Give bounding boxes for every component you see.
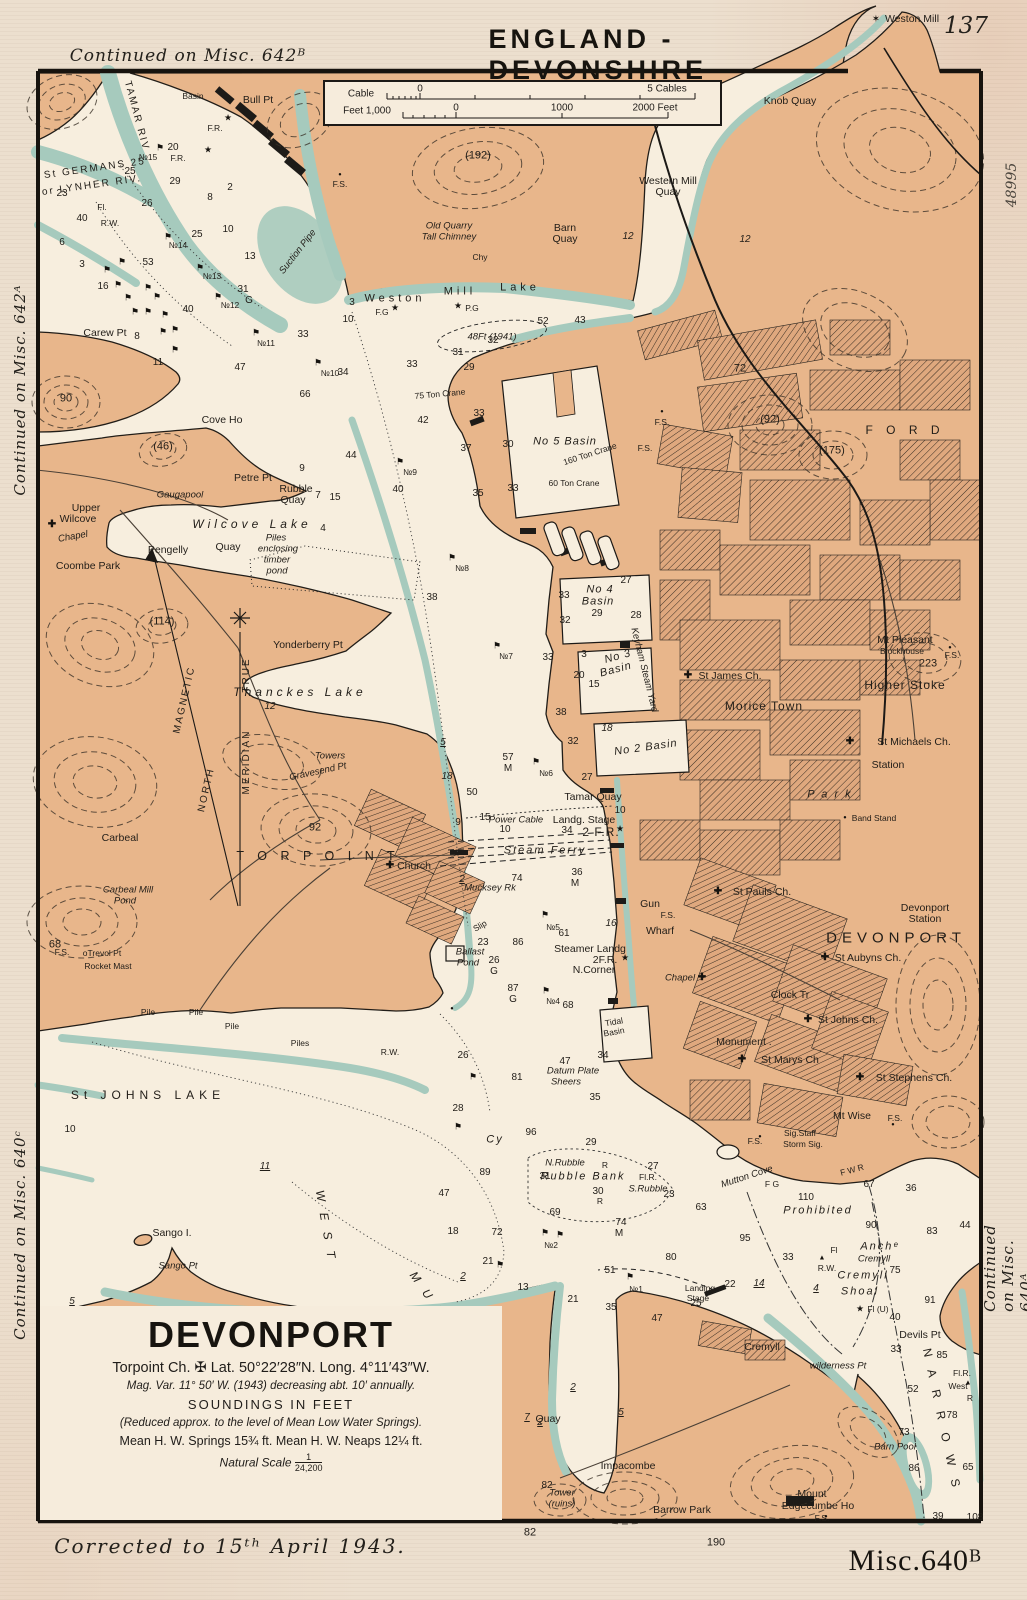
scale-feet-label: Feet 1,000	[343, 106, 391, 117]
page-number: 137	[944, 13, 988, 39]
continued-note-left-bottom: Continued on Misc. 640ᶜ	[11, 1130, 29, 1340]
continued-note-top: Continued on Misc. 642ᴮ	[70, 46, 307, 66]
scale-cable-label: Cable	[348, 89, 374, 100]
natural-scale-label: Natural Scale	[220, 1456, 292, 1470]
soundings-note: SOUNDINGS IN FEET	[40, 1397, 502, 1412]
scale-feet-right: 2000 Feet	[632, 103, 677, 114]
scale-bar-box: Cable 0 5 Cables Feet 1,000 0 1000 2000 …	[323, 80, 722, 126]
magnetic-variation: Mag. Var. 11° 50′ W. (1943) decreasing a…	[40, 1380, 502, 1392]
scale-denominator: 24,200	[295, 1462, 323, 1473]
corrected-note: Corrected to 15ᵗʰ April 1943.	[54, 1534, 406, 1558]
scale-numerator: 1	[306, 1452, 311, 1462]
natural-scale-fraction: 1 24,200	[295, 1453, 323, 1474]
stock-number: 48995	[1004, 163, 1020, 208]
chart-title: DEVONPORT	[40, 1314, 502, 1356]
chart-region-title: ENGLAND - DEVONSHIRE	[489, 24, 848, 86]
scale-feet-zero: 0	[453, 103, 459, 114]
scale-feet-mid: 1000	[551, 103, 573, 114]
chart-position: Torpoint Ch. ✠ Lat. 50°22′28″N. Long. 4°…	[40, 1360, 502, 1376]
scale-cable-zero: 0	[417, 84, 423, 95]
title-block: DEVONPORT Torpoint Ch. ✠ Lat. 50°22′28″N…	[40, 1306, 502, 1520]
chart-page: Weston MillKnob QuayWestern MillQuayBarn…	[0, 0, 1027, 1600]
continued-note-right: Continued on Misc. 640ᴬ	[981, 1224, 1027, 1312]
datum-note: (Reduced approx. to the level of Mean Lo…	[40, 1417, 502, 1429]
tide-levels: Mean H. W. Springs 15¾ ft. Mean H. W. Ne…	[40, 1434, 502, 1448]
continued-note-left-top: Continued on Misc. 642ᴬ	[11, 284, 29, 495]
sheet-reference: Misc.640ᴮ	[848, 1544, 981, 1578]
natural-scale: Natural Scale 1 24,200	[40, 1453, 502, 1474]
